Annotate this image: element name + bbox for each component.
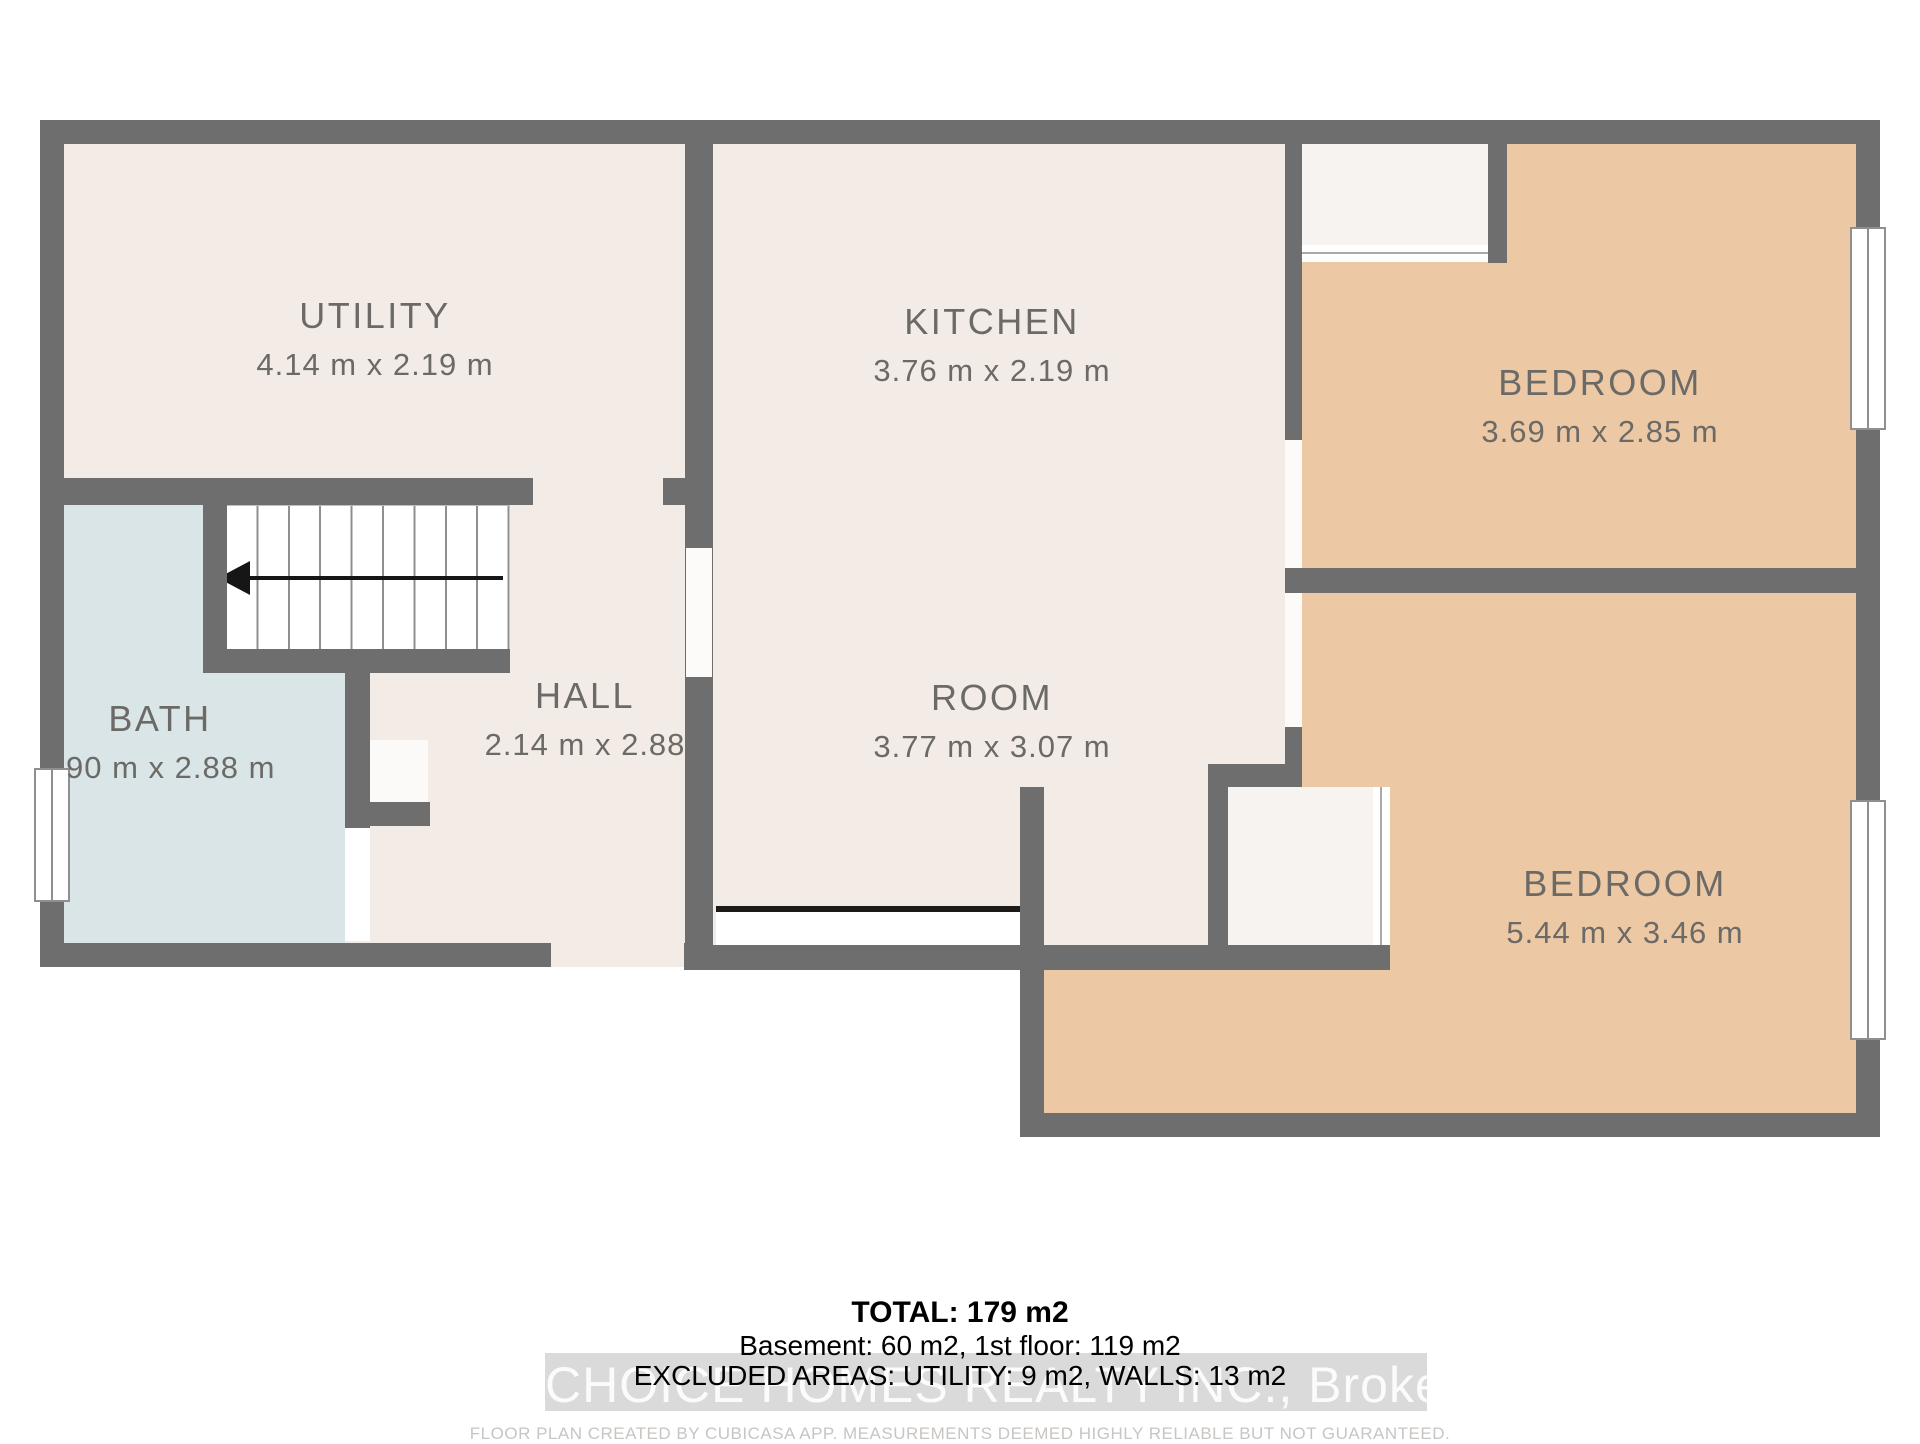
label-utility: UTILITY 4.14 m x 2.19 m [125, 296, 625, 383]
wall-closet-1-right [1488, 144, 1507, 263]
closet-2-interior [1228, 787, 1373, 945]
wall-top [40, 120, 1880, 144]
door-bath [345, 828, 370, 941]
room-name: ROOM [742, 678, 1242, 718]
stairs-direction-arrow [247, 576, 503, 580]
footer-disclaimer: FLOOR PLAN CREATED BY CUBICASA APP. MEAS… [0, 1424, 1920, 1444]
label-bath: BATH [10, 699, 310, 739]
wall-bedroom-divider [1285, 568, 1880, 593]
bedroom-1-name: BEDROOM [1350, 363, 1850, 403]
bath-dims: 90 m x 2.88 m [66, 750, 275, 786]
bath-name: BATH [10, 699, 310, 739]
wall-closet-2-left [1208, 764, 1228, 945]
footer-excluded: EXCLUDED AREAS: UTILITY: 9 m2, WALLS: 13… [0, 1360, 1920, 1392]
wall-kitchen-bedroom-upper [1285, 144, 1302, 440]
opening-utility [533, 478, 663, 505]
bedroom-2-name: BEDROOM [1375, 864, 1875, 904]
window-frame-line [51, 770, 53, 900]
window-bath-left [34, 768, 70, 902]
wall-bedroom2-left [1020, 787, 1044, 1137]
bedroom-2-dims: 5.44 m x 3.46 m [1375, 915, 1875, 951]
door-bedroom-2 [1285, 593, 1302, 727]
wall-bedroom2-bottom [1020, 1113, 1880, 1137]
window-frame-line [1867, 229, 1869, 428]
label-room: ROOM 3.77 m x 3.07 m [742, 678, 1242, 765]
wall-stairs-bottom [203, 649, 510, 673]
bedroom-1-dims: 3.69 m x 2.85 m [1350, 414, 1850, 450]
closet-1-interior [1302, 144, 1488, 245]
floor-plan: UTILITY 4.14 m x 2.19 m KITCHEN 3.76 m x… [0, 0, 1920, 1440]
door-bedroom-1 [1285, 440, 1302, 568]
kitchen-dims: 3.76 m x 2.19 m [742, 353, 1242, 389]
floor-bedroom-2-lower [1044, 970, 1302, 1113]
label-kitchen: KITCHEN 3.76 m x 2.19 m [742, 302, 1242, 389]
footer-total: TOTAL: 179 m2 [0, 1296, 1920, 1330]
wall-bath-door-stub [345, 802, 430, 826]
room-dims: 3.77 m x 3.07 m [742, 729, 1242, 765]
room-opening-band [716, 912, 1020, 945]
utility-name: UTILITY [125, 296, 625, 336]
label-bedroom-1: BEDROOM 3.69 m x 2.85 m [1350, 363, 1850, 450]
utility-dims: 4.14 m x 2.19 m [125, 347, 625, 383]
opening-hall-bottom [551, 943, 684, 967]
closet-1-door-line [1302, 252, 1488, 254]
wall-stairs-left [203, 505, 227, 673]
kitchen-name: KITCHEN [742, 302, 1242, 342]
label-bedroom-2: BEDROOM 5.44 m x 3.46 m [1375, 864, 1875, 951]
window-bedroom-1-right [1850, 227, 1886, 430]
footer-areas: Basement: 60 m2, 1st floor: 119 m2 [0, 1330, 1920, 1362]
door-kitchen-hall [686, 548, 712, 677]
